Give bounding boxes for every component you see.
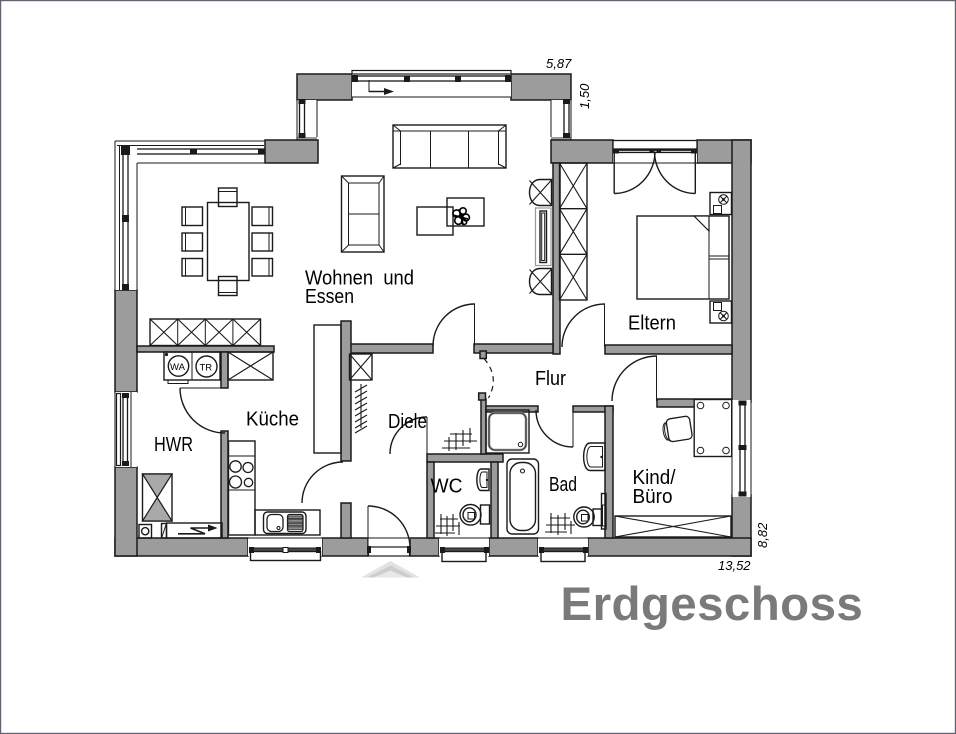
svg-text:Büro: Büro [633,485,673,508]
svg-text:Essen: Essen [305,285,354,308]
svg-text:Diele: Diele [388,410,427,433]
svg-text:1,50: 1,50 [577,83,592,109]
svg-text:Küche: Küche [246,408,299,431]
svg-text:8,82: 8,82 [755,522,770,548]
svg-text:Erdgeschoss: Erdgeschoss [561,578,864,631]
svg-text:Flur: Flur [535,367,566,390]
svg-text:WA: WA [170,362,186,373]
svg-text:13,52: 13,52 [718,558,751,573]
svg-text:5,87: 5,87 [546,56,572,71]
svg-text:Eltern: Eltern [628,312,676,335]
svg-text:Bad: Bad [549,473,577,496]
svg-text:HWR: HWR [154,433,193,456]
svg-text:WC: WC [431,475,463,498]
svg-text:TR: TR [200,363,213,374]
